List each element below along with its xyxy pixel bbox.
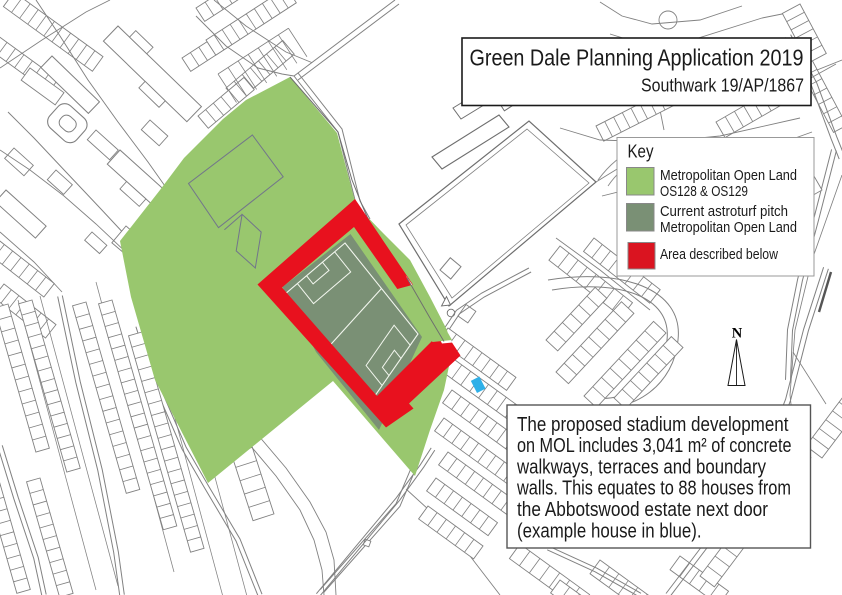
svg-text:Metropolitan Open Land: Metropolitan Open Land <box>660 167 797 184</box>
svg-text:Southwark 19/AP/1867: Southwark 19/AP/1867 <box>641 76 804 96</box>
svg-text:walkways, terraces and boundar: walkways, terraces and boundary <box>516 456 766 478</box>
svg-text:walls. This equates to 88 hous: walls. This equates to 88 houses from <box>516 478 791 500</box>
svg-text:(example house in blue).: (example house in blue). <box>517 520 702 542</box>
svg-text:the Abbotswood estate next doo: the Abbotswood estate next door <box>517 499 768 521</box>
svg-text:N: N <box>732 326 743 342</box>
svg-text:Current astroturf pitch: Current astroturf pitch <box>660 203 788 220</box>
svg-text:Metropolitan Open Land: Metropolitan Open Land <box>660 219 797 236</box>
svg-text:Key: Key <box>628 142 654 162</box>
svg-text:on MOL includes 3,041 m² of co: on MOL includes 3,041 m² of concrete <box>517 435 792 457</box>
svg-text:Area described below: Area described below <box>660 246 778 263</box>
svg-text:Green Dale Planning Applicatio: Green Dale Planning Application 2019 <box>470 45 804 71</box>
svg-text:OS128 & OS129: OS128 & OS129 <box>660 183 748 200</box>
svg-text:The proposed stadium developme: The proposed stadium development <box>517 414 789 436</box>
